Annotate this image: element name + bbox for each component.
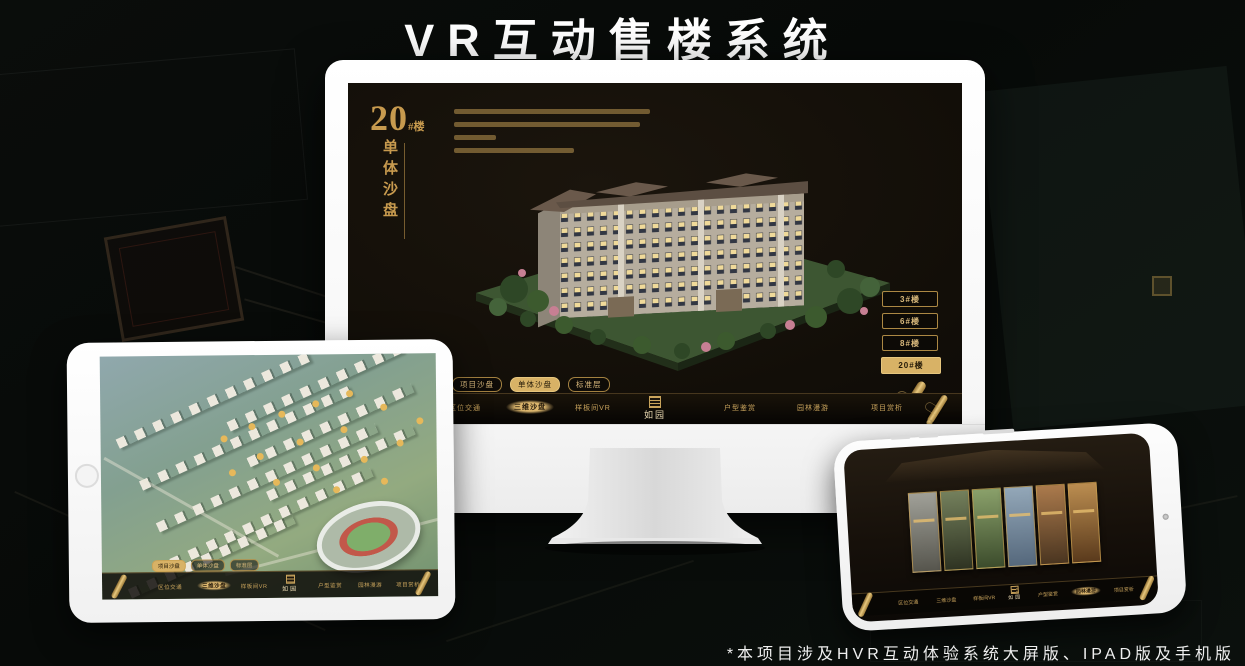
tablet-device: 项目沙盘 单体沙盘 标准层 区位交通 三维沙盘 样板间VR 如园 户型鉴赏 园林… xyxy=(67,339,456,623)
tab-standard-floor[interactable]: 标准层 xyxy=(230,559,259,571)
tablet-screen: 项目沙盘 单体沙盘 标准层 区位交通 三维沙盘 样板间VR 如园 户型鉴赏 园林… xyxy=(100,353,439,600)
tab-standard-floor[interactable]: 标准层 xyxy=(568,377,610,392)
brand-logo-text: 如园 xyxy=(282,584,298,593)
gallery-panel[interactable] xyxy=(972,487,1006,569)
aerial-building-row xyxy=(227,353,404,431)
brand-logo-text: 如园 xyxy=(1008,593,1022,601)
background-photo-block xyxy=(978,66,1245,430)
floor-button-3[interactable]: 3#楼 xyxy=(882,291,938,307)
gallery-panel[interactable] xyxy=(1004,486,1038,568)
nav-item-location[interactable]: 区位交通 xyxy=(449,403,481,413)
nav-item-unit-plans[interactable]: 户型鉴赏 xyxy=(724,403,756,413)
nav-item-project-review[interactable]: 项目赏析 xyxy=(871,403,903,413)
gallery-panel[interactable] xyxy=(940,489,974,571)
floor-button-8[interactable]: 8#楼 xyxy=(882,335,938,351)
nav-item-3d-sandtable[interactable]: 三维沙盘 xyxy=(936,596,956,604)
nav-item-showroom-vr[interactable]: 样板间VR xyxy=(575,403,611,413)
footer-note: *本项目涉及HVR互动体验系统大屏版、IPAD版及手机版 xyxy=(727,640,1235,664)
scroll-menu-icon[interactable] xyxy=(926,394,948,424)
gallery-panel[interactable] xyxy=(908,491,942,573)
seal-icon xyxy=(285,575,294,584)
front-camera xyxy=(1162,514,1168,520)
nav-item-unit-plans[interactable]: 户型鉴赏 xyxy=(318,581,342,589)
nav-item-3d-sandtable[interactable]: 三维沙盘 xyxy=(197,580,231,590)
floor-button-group: 3#楼 6#楼 8#楼 20#楼 xyxy=(881,291,939,380)
tab-single-sandtable[interactable]: 单体沙盘 xyxy=(191,559,225,571)
nav-item-location[interactable]: 区位交通 xyxy=(158,583,182,591)
phone-device: 区位交通 三维沙盘 样板间VR 如园 户型鉴赏 园林漫游 项目赏析 xyxy=(833,422,1188,632)
mode-tab-group: 项目沙盘 单体沙盘 标准层 xyxy=(452,377,610,392)
nav-item-garden-tour[interactable]: 园林漫游 xyxy=(358,581,382,589)
home-button[interactable] xyxy=(75,464,99,488)
monitor-stand xyxy=(530,448,780,558)
floor-button-20[interactable]: 20#楼 xyxy=(881,357,941,374)
brand-logo: 如园 xyxy=(644,396,666,421)
seal-icon xyxy=(649,396,661,408)
volume-button[interactable] xyxy=(890,435,910,440)
gallery-panel[interactable] xyxy=(1036,484,1070,566)
courtyard-gate xyxy=(884,443,1105,482)
tablet-mode-tab-group: 项目沙盘 单体沙盘 标准层 xyxy=(152,559,259,572)
brand-logo: 如园 xyxy=(282,575,298,593)
nav-item-garden-tour[interactable]: 园林漫游 xyxy=(797,403,829,413)
background-frame xyxy=(0,48,308,227)
phone-nav-bar: 区位交通 三维沙盘 样板间VR 如园 户型鉴赏 园林漫游 项目赏析 xyxy=(852,575,1159,616)
nav-item-showroom-vr[interactable]: 样板间VR xyxy=(973,594,995,602)
section-vertical-title: 单体沙盘 xyxy=(382,139,397,259)
tab-project-sandtable[interactable]: 项目沙盘 xyxy=(452,377,502,392)
volume-button[interactable] xyxy=(918,433,938,438)
floor-button-6[interactable]: 6#楼 xyxy=(882,313,938,329)
phone-screen: 区位交通 三维沙盘 样板间VR 如园 户型鉴赏 园林漫游 项目赏析 xyxy=(843,433,1159,623)
scroll-menu-icon[interactable] xyxy=(110,574,127,600)
brand-logo: 如园 xyxy=(1008,585,1023,601)
background-road-line xyxy=(446,560,694,642)
nav-item-location[interactable]: 区位交通 xyxy=(898,599,918,607)
building-render xyxy=(468,141,898,391)
background-award-plaque xyxy=(104,216,245,342)
nav-item-showroom-vr[interactable]: 样板间VR xyxy=(241,582,268,590)
tab-project-sandtable[interactable]: 项目沙盘 xyxy=(152,560,186,572)
nav-item-garden-tour[interactable]: 园林漫游 xyxy=(1071,586,1101,597)
floor-title: 20#楼 xyxy=(370,97,425,139)
background-gold-chip xyxy=(1152,276,1172,296)
nav-item-project-review[interactable]: 项目赏析 xyxy=(1114,586,1134,594)
floor-number: 20 xyxy=(370,98,408,138)
tablet-nav-bar: 区位交通 三维沙盘 样板间VR 如园 户型鉴赏 园林漫游 项目赏析 xyxy=(102,569,438,600)
floor-suffix: #楼 xyxy=(408,121,425,133)
scroll-menu-icon[interactable] xyxy=(1139,575,1155,601)
tab-single-sandtable[interactable]: 单体沙盘 xyxy=(510,377,560,392)
aerial-road xyxy=(103,457,279,558)
building-number-badges[interactable] xyxy=(221,435,228,442)
gold-divider xyxy=(404,143,405,239)
promo-canvas: VR互动售楼系统 20#楼 单体沙盘 xyxy=(0,0,1245,666)
nav-item-unit-plans[interactable]: 户型鉴赏 xyxy=(1038,590,1058,598)
brand-logo-text: 如园 xyxy=(644,408,666,421)
power-button[interactable] xyxy=(982,429,1014,435)
scroll-menu-icon[interactable] xyxy=(857,592,873,618)
gallery-panel[interactable] xyxy=(1068,482,1102,564)
nav-item-3d-sandtable[interactable]: 三维沙盘 xyxy=(506,400,554,414)
